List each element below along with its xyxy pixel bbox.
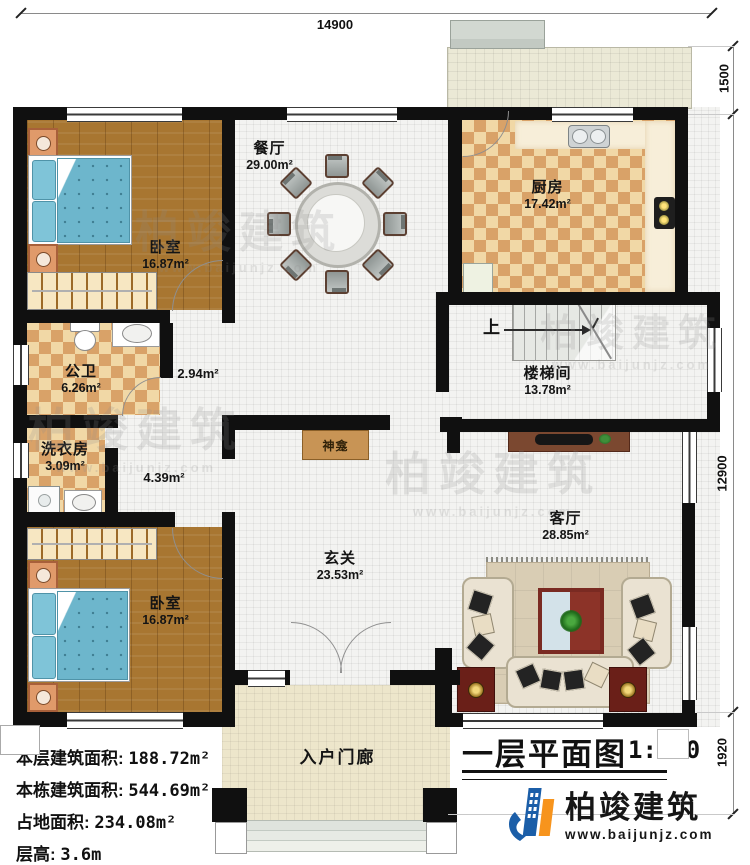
watermark: 柏竣建筑www.baijunjz.com bbox=[540, 302, 724, 372]
room-label-foyer: 玄关23.53m² bbox=[295, 551, 385, 582]
title-underline bbox=[462, 770, 667, 780]
kitchen-sink bbox=[568, 125, 610, 148]
rug-fringe bbox=[486, 557, 648, 562]
exterior-detail-box bbox=[0, 725, 40, 755]
sink-basin bbox=[590, 129, 606, 144]
watermark: 柏竣建筑www.baijunjz.com bbox=[28, 394, 244, 475]
dining-chair bbox=[325, 154, 349, 178]
exterior-detail-box bbox=[657, 729, 689, 759]
window bbox=[552, 107, 633, 122]
window bbox=[67, 107, 182, 122]
toilet-bowl bbox=[74, 330, 96, 351]
watermark: 柏竣建筑www.baijunjz.com bbox=[385, 438, 601, 519]
extension-line bbox=[688, 46, 734, 47]
side-table bbox=[457, 667, 495, 712]
stats-block: 本层建筑面积: 188.72m² 本栋建筑面积: 544.69m² 占地面积: … bbox=[16, 744, 266, 865]
sink-basin bbox=[572, 129, 588, 144]
window bbox=[463, 713, 603, 729]
wall bbox=[448, 107, 462, 305]
stove bbox=[654, 197, 675, 229]
drawing-title: 一层平面图 bbox=[462, 729, 627, 774]
wardrobe bbox=[27, 272, 157, 310]
room-label-kitchen: 厨房17.42m² bbox=[500, 180, 595, 211]
wall bbox=[222, 310, 235, 323]
window bbox=[682, 432, 697, 503]
nightstand bbox=[28, 128, 58, 158]
room-label-dining: 餐厅29.00m² bbox=[222, 141, 317, 172]
burner bbox=[659, 201, 669, 211]
wall bbox=[222, 415, 390, 430]
window bbox=[682, 627, 697, 700]
dimension-line-right bbox=[733, 46, 734, 815]
window bbox=[287, 107, 397, 122]
washer-door bbox=[38, 494, 51, 507]
company-logo: 柏竣建筑 www.baijunjz.com bbox=[505, 785, 714, 848]
stat-row: 本层建筑面积: 188.72m² bbox=[16, 744, 266, 769]
sofa-pillow bbox=[471, 613, 495, 637]
bed-pillow bbox=[32, 593, 56, 635]
basin bbox=[72, 494, 96, 511]
plant bbox=[560, 610, 582, 632]
bath-sink bbox=[112, 319, 160, 347]
company-logo-icon bbox=[505, 785, 557, 848]
bed-pillow bbox=[32, 201, 56, 242]
dimension-label-right-upper: 1500 bbox=[717, 53, 732, 105]
shrine-table: 神龛 bbox=[302, 430, 369, 460]
burner bbox=[659, 215, 669, 225]
nightstand bbox=[28, 561, 58, 590]
room-label-porch: 入户门廊 bbox=[290, 748, 385, 767]
coffee-table bbox=[538, 588, 604, 654]
porch-column-base bbox=[426, 822, 457, 854]
washing-machine bbox=[28, 486, 60, 514]
extension-line bbox=[697, 712, 734, 713]
company-name: 柏竣建筑 bbox=[565, 792, 714, 823]
window bbox=[13, 345, 29, 385]
porch-steps bbox=[238, 820, 450, 852]
dimension-label-top: 14900 bbox=[300, 17, 370, 32]
side-table bbox=[609, 667, 647, 712]
fridge bbox=[463, 263, 493, 295]
floor-plan-canvas: 上 神龛 bbox=[0, 0, 750, 865]
room-label-bathroom: 公卫6.26m² bbox=[36, 364, 126, 395]
bed-blanket bbox=[57, 158, 130, 243]
wall bbox=[13, 512, 175, 527]
dimension-label-right-middle: 12900 bbox=[715, 442, 730, 506]
company-website: www.baijunjz.com bbox=[565, 827, 714, 842]
wall bbox=[436, 292, 449, 392]
watermark: 柏竣建筑www.baijunjz.com bbox=[135, 196, 343, 275]
bed bbox=[28, 588, 130, 682]
wall bbox=[222, 670, 248, 685]
basin bbox=[122, 324, 152, 343]
laundry-sink bbox=[64, 490, 102, 514]
porch-column bbox=[423, 788, 457, 822]
stairs-up-label: 上 bbox=[482, 318, 502, 337]
stat-row: 本栋建筑面积: 544.69m² bbox=[16, 776, 266, 801]
bed bbox=[28, 155, 132, 245]
room-label-bedroom2: 卧室16.87m² bbox=[118, 596, 213, 627]
dining-chair bbox=[383, 212, 407, 236]
floor-kitchen-balcony bbox=[447, 47, 692, 109]
shrine-label: 神龛 bbox=[322, 437, 348, 454]
sofa-pillow bbox=[539, 668, 562, 691]
window bbox=[67, 712, 183, 729]
balcony-steps bbox=[450, 20, 545, 49]
window bbox=[248, 670, 285, 687]
extension-line bbox=[688, 114, 734, 115]
bed-pillow bbox=[32, 160, 56, 200]
nightstand bbox=[28, 683, 58, 712]
bed-pillow bbox=[32, 636, 56, 679]
wall bbox=[390, 670, 460, 685]
wall bbox=[675, 107, 688, 305]
stat-row: 占地面积: 234.08m² bbox=[16, 808, 266, 833]
wall bbox=[445, 419, 707, 432]
dimension-label-right-lower: 1920 bbox=[715, 725, 730, 781]
nightstand bbox=[28, 244, 58, 274]
wall bbox=[285, 670, 290, 685]
wardrobe bbox=[27, 528, 157, 560]
wall bbox=[222, 512, 235, 527]
wall bbox=[13, 310, 170, 323]
dimension-line-top bbox=[20, 13, 712, 14]
room-label-corridor1: 2.94m² bbox=[160, 367, 236, 382]
stat-row: 层高: 3.6m bbox=[16, 840, 266, 865]
sofa-pillow bbox=[563, 669, 586, 692]
